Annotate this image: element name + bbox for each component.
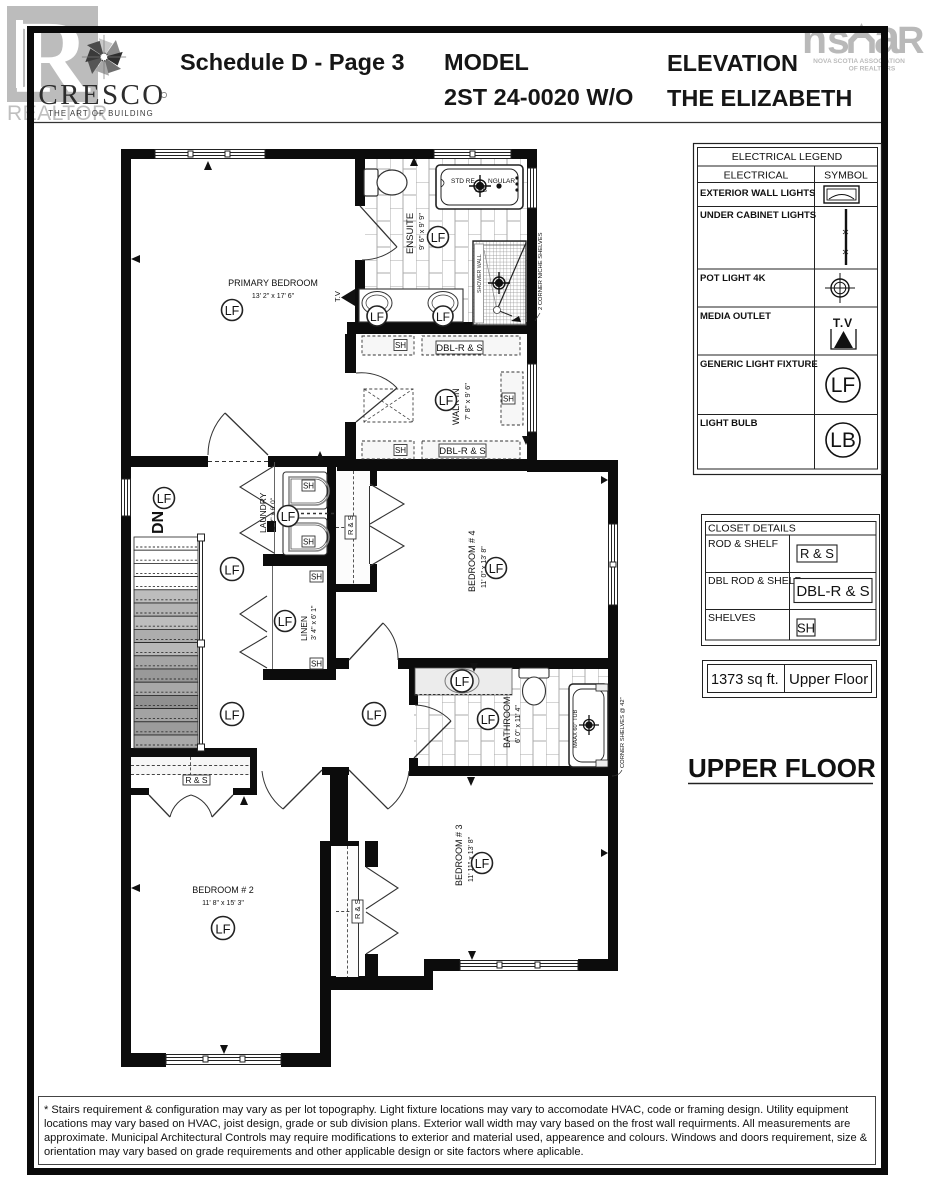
svg-text:THE ART OF BUILDING: THE ART OF BUILDING: [48, 109, 154, 118]
svg-text:9' 6" x 9' 9": 9' 6" x 9' 9": [417, 213, 426, 250]
svg-text:LF: LF: [455, 675, 470, 689]
svg-text:ENSUITE: ENSUITE: [405, 213, 416, 254]
svg-text:* Stairs requirement & configu: * Stairs requirement & configuration may…: [44, 1104, 848, 1116]
svg-text:DN: DN: [150, 511, 167, 534]
svg-text:NOVA SCOTIA ASSOCIATION: NOVA SCOTIA ASSOCIATION: [813, 58, 905, 65]
svg-text:LF: LF: [439, 394, 454, 408]
svg-text:T.V: T.V: [333, 291, 342, 302]
svg-text:SH: SH: [311, 660, 322, 669]
svg-text:R & S: R & S: [346, 515, 355, 535]
svg-text:LF: LF: [278, 615, 293, 629]
svg-text:R & S: R & S: [800, 546, 834, 561]
svg-text:LF: LF: [157, 492, 172, 506]
svg-text:CRESCO: CRESCO: [38, 79, 165, 111]
svg-text:LIGHT BULB: LIGHT BULB: [700, 418, 758, 429]
svg-text:LF: LF: [481, 713, 496, 727]
svg-text:UPPER FLOOR: UPPER FLOOR: [688, 753, 876, 783]
svg-text:DBL-R & S: DBL-R & S: [436, 343, 482, 354]
svg-text:T.V: T.V: [833, 316, 853, 330]
svg-text:11' 8" x 15' 3": 11' 8" x 15' 3": [202, 900, 244, 907]
svg-text:OF REALTORS: OF REALTORS: [849, 66, 896, 73]
svg-text:STD RE: STD RE: [451, 178, 476, 185]
svg-text:MAAX 60" TUB: MAAX 60" TUB: [573, 709, 579, 748]
svg-text:ns: ns: [802, 16, 850, 62]
svg-text:ELEVATION: ELEVATION: [667, 50, 798, 76]
svg-text:6' 0" x 11' 4": 6' 0" x 11' 4": [515, 705, 522, 743]
svg-text:SH: SH: [303, 538, 314, 547]
svg-text:THE ELIZABETH: THE ELIZABETH: [667, 85, 852, 111]
svg-text:LF: LF: [489, 562, 504, 576]
svg-text:SYMBOL: SYMBOL: [824, 170, 868, 182]
svg-text:LB: LB: [830, 429, 856, 452]
svg-text:approximate. Municipal Archite: approximate. Municipal Architectural Con…: [44, 1132, 868, 1144]
svg-text:SH: SH: [503, 395, 514, 404]
svg-text:LF: LF: [436, 310, 450, 324]
svg-text:SH: SH: [395, 446, 406, 455]
svg-text:3' 2" x 6' 0": 3' 2" x 6' 0": [270, 497, 277, 530]
svg-text:1373 sq ft.: 1373 sq ft.: [711, 672, 779, 688]
svg-text:DBL-R & S: DBL-R & S: [439, 446, 485, 457]
svg-text:R & S: R & S: [185, 775, 208, 785]
svg-text:MODEL: MODEL: [444, 49, 529, 75]
svg-text:SHOWER WALL: SHOWER WALL: [477, 254, 483, 293]
svg-text:LF: LF: [366, 708, 381, 723]
svg-text:BEDROOM # 2: BEDROOM # 2: [192, 885, 254, 895]
svg-text:BEDROOM # 3: BEDROOM # 3: [454, 824, 464, 886]
svg-text:2ST 24-0020 W/O: 2ST 24-0020 W/O: [444, 84, 633, 110]
svg-text:R & S: R & S: [353, 899, 362, 919]
svg-text:LF: LF: [831, 374, 856, 397]
svg-text:BEDROOM # 4: BEDROOM # 4: [467, 530, 477, 592]
svg-text:SH: SH: [797, 621, 815, 636]
svg-text:LF: LF: [224, 563, 239, 578]
svg-text:2 CORNER NICHE SHELVES: 2 CORNER NICHE SHELVES: [538, 232, 544, 310]
svg-text:LF: LF: [475, 857, 490, 871]
svg-text:7' 8" x 9' 6": 7' 8" x 9' 6": [463, 383, 472, 420]
svg-text:SH: SH: [395, 341, 406, 350]
svg-text:GENERIC LIGHT FIXTURE: GENERIC LIGHT FIXTURE: [700, 359, 818, 370]
svg-text:LF: LF: [215, 922, 230, 937]
svg-text:ROD & SHELF: ROD & SHELF: [708, 538, 778, 550]
svg-text:DBL ROD & SHELF: DBL ROD & SHELF: [708, 575, 801, 587]
svg-text:LF: LF: [370, 310, 384, 324]
svg-text:ELECTRICAL: ELECTRICAL: [724, 170, 789, 182]
svg-text:3' 4" x 6' 1": 3' 4" x 6' 1": [311, 605, 318, 640]
svg-text:ELECTRICAL LEGEND: ELECTRICAL LEGEND: [732, 151, 843, 163]
svg-text:LF: LF: [224, 708, 239, 723]
svg-text:locations may vary based on HV: locations may vary based on HVAC, joist …: [44, 1118, 850, 1130]
svg-text:LF: LF: [431, 231, 446, 245]
svg-text:MEDIA OUTLET: MEDIA OUTLET: [700, 311, 771, 322]
svg-text:SH: SH: [303, 482, 314, 491]
svg-text:LF: LF: [281, 510, 296, 524]
svg-text:CLOSET DETAILS: CLOSET DETAILS: [708, 523, 796, 535]
svg-text:SH: SH: [311, 573, 322, 582]
svg-text:UNDER CABINET LIGHTS: UNDER CABINET LIGHTS: [700, 210, 816, 221]
svg-text:R: R: [897, 20, 924, 62]
svg-text:orientation may vary based on: orientation may vary based on grade requ…: [44, 1146, 584, 1158]
svg-text:SHELVES: SHELVES: [708, 612, 756, 624]
svg-text:Upper Floor: Upper Floor: [789, 671, 868, 688]
svg-text:LF: LF: [225, 304, 240, 318]
svg-text:NGULAR: NGULAR: [488, 178, 515, 185]
svg-text:EXTERIOR WALL LIGHTS: EXTERIOR WALL LIGHTS: [700, 188, 815, 199]
svg-text:BATHROOM: BATHROOM: [502, 697, 512, 748]
svg-text:PRIMARY BEDROOM: PRIMARY BEDROOM: [228, 278, 318, 288]
svg-text:POT LIGHT 4K: POT LIGHT 4K: [700, 273, 766, 284]
svg-text:LINEN: LINEN: [299, 616, 309, 641]
svg-text:CORNER SHELVES @ 42": CORNER SHELVES @ 42": [620, 697, 626, 768]
svg-text:DBL-R & S: DBL-R & S: [796, 583, 869, 600]
svg-text:13' 2" x 17' 6": 13' 2" x 17' 6": [252, 293, 295, 300]
svg-text:Schedule D - Page 3: Schedule D - Page 3: [180, 49, 405, 75]
svg-text:LAUNDRY: LAUNDRY: [258, 492, 268, 533]
